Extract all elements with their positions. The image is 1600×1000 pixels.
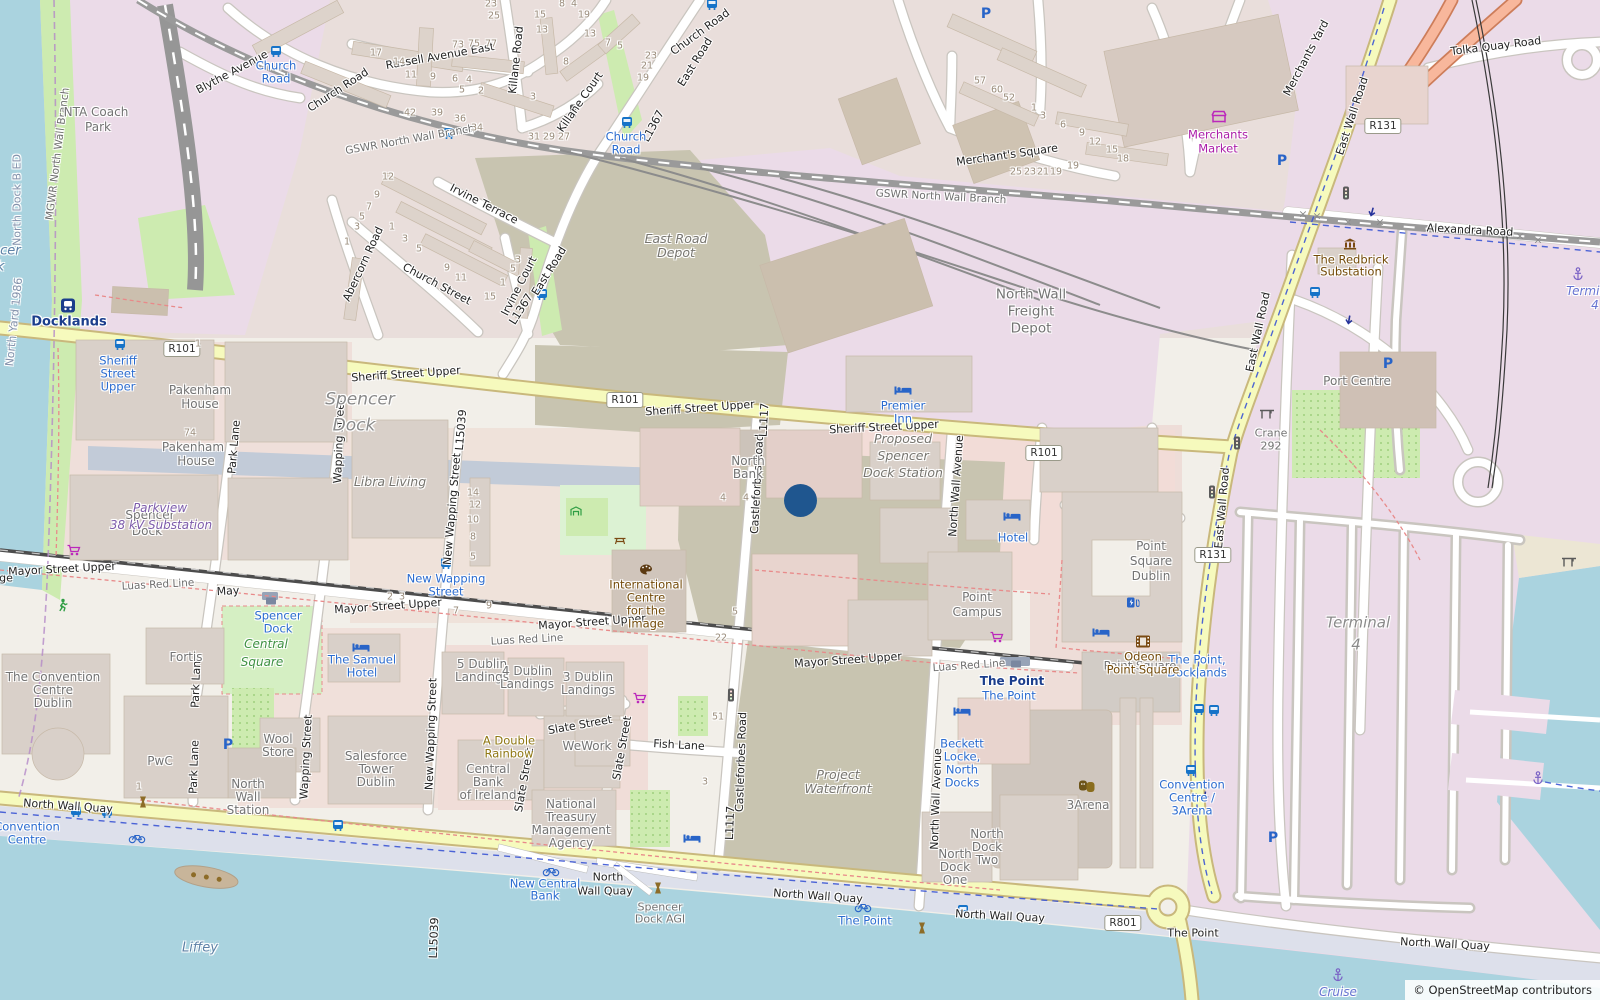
- parkview-label: Parkview: [133, 502, 187, 514]
- traffic-light-icon: [1234, 435, 1240, 454]
- dock-label: Dock: [132, 525, 162, 537]
- pwc-label: PwC: [147, 755, 172, 767]
- bike-icon: [855, 898, 872, 917]
- 6-label: 6: [1060, 120, 1066, 130]
- 6-label: 6: [452, 74, 458, 84]
- fortis-label: Fortis: [169, 651, 202, 663]
- wapping-street-label: Wapping Street: [298, 714, 313, 799]
- picnic-icon: [614, 531, 627, 550]
- depot-label: Depot: [1011, 322, 1052, 336]
- 23-label: 23: [1024, 167, 1036, 177]
- 3-label: 3: [1040, 111, 1046, 121]
- 19-label: 19: [1050, 167, 1062, 177]
- hotel-label: Hotel: [347, 667, 377, 679]
- north-label: North: [938, 848, 972, 860]
- a-double-label: A Double: [483, 735, 535, 747]
- central-label: Central: [244, 638, 288, 650]
- slate-street-label: Slate Street: [611, 715, 633, 781]
- 3-label: 3: [702, 777, 708, 787]
- nav-arrow-icon: [1365, 202, 1380, 223]
- bollard-icon: [918, 920, 927, 939]
- ev-icon: [1127, 594, 1140, 613]
- 8-label: 8: [470, 532, 476, 542]
- waterfront-label: Waterfront: [804, 783, 871, 796]
- 25-label: 25: [488, 11, 500, 21]
- mgwr-north-wall-branch-label: MGWR North Wall Branch: [45, 87, 72, 221]
- train-station-icon: [61, 298, 75, 317]
- abercorn-road-label: Abercorn Road: [341, 225, 385, 303]
- church-street-label: Church Street: [401, 261, 473, 306]
- nav-arrow-icon: [1342, 310, 1355, 330]
- l1117-label: L1117: [724, 806, 736, 840]
- international-label: International: [609, 579, 682, 591]
- 9-label: 9: [430, 72, 436, 82]
- the-point-label: The Point: [980, 675, 1044, 687]
- crane-icon: [1259, 405, 1275, 424]
- new-wapping-street-label: New Wapping Street: [424, 678, 439, 791]
- pakenham-label: Pakenham: [169, 384, 231, 396]
- north-label: North: [946, 764, 978, 776]
- anchor-icon: [1572, 267, 1585, 286]
- map-canvas[interactable]: R101R101R101R131R131R801 PPPPP×××××× She…: [0, 0, 1600, 1000]
- wework-label: WeWork: [563, 740, 612, 752]
- sheriff-street-upper-label: Sheriff Street Upper: [829, 419, 939, 436]
- 1-label: 1: [500, 278, 506, 288]
- r101-shield: R101: [606, 392, 643, 408]
- russell-avenue-east-label: Russell Avenue East: [385, 41, 495, 71]
- runner-icon: [57, 598, 68, 617]
- spencer-label: Spencer: [637, 902, 682, 913]
- east-wall-road-label: East Wall Road: [1334, 76, 1370, 157]
- museum-icon: [1343, 235, 1357, 254]
- bus-icon: [332, 817, 344, 836]
- central-label: Central: [466, 763, 510, 775]
- l1367-label: L1367: [507, 292, 534, 327]
- 5-label: 5: [732, 607, 738, 617]
- road-label: Road: [612, 144, 641, 156]
- level-cross-icon: ×: [1375, 216, 1384, 229]
- 5-dublin-label: 5 Dublin: [457, 658, 507, 670]
- landings-label: Landings: [455, 671, 509, 683]
- 9-label: 9: [1079, 128, 1085, 138]
- market-label: Market: [1198, 143, 1238, 155]
- 38-kv-substation-label: 38 kV Substation: [110, 519, 212, 531]
- killane-court-label: Killane Court: [555, 70, 604, 134]
- park-label: Park: [85, 121, 111, 133]
- point-label: Point: [962, 591, 992, 603]
- bus-icon: [440, 555, 452, 574]
- irvine-terrace-label: Irvine Terrace: [448, 182, 519, 226]
- premier-label: Premier: [881, 400, 925, 412]
- 292-label: 292: [1261, 441, 1282, 452]
- blythe-avenue-label: Blythe Avenue: [194, 48, 269, 95]
- 3-label: 3: [402, 234, 408, 244]
- 14-label: 14: [467, 488, 479, 498]
- l15039-label: L15039: [428, 917, 440, 958]
- irvine-court-label: Irvine Court: [499, 255, 538, 318]
- bollard-icon: [654, 880, 663, 899]
- 12-label: 12: [469, 500, 481, 510]
- 7-label: 7: [366, 202, 372, 212]
- convention-label: Convention: [0, 821, 60, 833]
- bank-label: Bank: [473, 776, 503, 788]
- mayor-street-upper-label: Mayor Street Upper: [538, 613, 646, 631]
- 4-label: 4: [743, 493, 749, 503]
- bike-icon: [543, 862, 560, 881]
- wool-label: Wool: [263, 733, 292, 745]
- dock-label: Dock: [0, 261, 4, 274]
- the-point-label: The Point: [1167, 928, 1218, 939]
- l1367-label: L1367: [640, 108, 666, 143]
- 73-label: 73: [452, 40, 464, 50]
- 42-label: 42: [404, 108, 416, 118]
- libra-living-label: Libra Living: [354, 476, 426, 489]
- north-label: North: [970, 828, 1004, 840]
- centre-label: Centre: [33, 684, 73, 696]
- 13-label: 13: [536, 25, 548, 35]
- bank-label: Bank: [733, 468, 763, 480]
- r131-shield: R131: [1194, 547, 1231, 563]
- bus-icon: [621, 114, 633, 133]
- dock-label: Dock: [940, 861, 970, 873]
- treasury-label: Treasury: [546, 811, 597, 823]
- boat-icon: [171, 860, 241, 897]
- 3-label: 3: [354, 222, 360, 232]
- tram-stop-icon: [266, 590, 276, 609]
- 14-label: 14: [393, 57, 405, 67]
- 12-label: 12: [382, 172, 394, 182]
- 74-label: 74: [184, 428, 196, 438]
- the-point-label: The Point,: [1168, 654, 1225, 666]
- spencer-label: Spencer: [0, 245, 21, 258]
- 12-label: 12: [1089, 137, 1101, 147]
- landings-label: Landings: [561, 684, 615, 696]
- 23-label: 23: [645, 51, 657, 61]
- killane-road-label: Killane Road: [507, 26, 525, 95]
- 3-label: 3: [515, 255, 521, 265]
- bus-icon: [706, 0, 718, 15]
- dock-agi-label: Dock AGI: [635, 914, 685, 925]
- proposed-label: Proposed: [874, 433, 932, 446]
- centre-label: Centre: [627, 592, 665, 604]
- 4-label: 4: [1591, 299, 1599, 311]
- 52-label: 52: [1003, 93, 1015, 103]
- sheriff-street-upper-label: Sheriff Street Upper: [351, 365, 461, 384]
- alexandra-road-label: Alexandra Road: [1426, 222, 1513, 238]
- centre-label: Centre: [8, 834, 46, 846]
- 29-label: 29: [543, 132, 555, 142]
- north-label: North: [731, 455, 765, 467]
- church-road-label: Church Road: [306, 66, 371, 113]
- parking-icon: P: [981, 6, 991, 22]
- point-square-label: Point Square: [1107, 664, 1180, 676]
- port-centre-label: Port Centre: [1323, 375, 1391, 387]
- 9-label: 9: [444, 263, 450, 273]
- 11-label: 11: [405, 70, 417, 80]
- 21-label: 21: [641, 61, 653, 71]
- market-icon: [1211, 109, 1227, 128]
- slate-street-label: Slate Street: [513, 747, 535, 813]
- east-road-label: East Road: [645, 233, 708, 246]
- 36-label: 36: [454, 114, 466, 124]
- map-overlay: R101R101R101R131R131R801 PPPPP×××××× She…: [0, 0, 1600, 1000]
- 18-label: 18: [1117, 154, 1129, 164]
- fish-lane-label: Fish Lane: [653, 738, 705, 752]
- east-road-label: East Road: [676, 36, 714, 88]
- 17-label: 17: [370, 48, 382, 58]
- bus-icon: [1309, 284, 1321, 303]
- terminal-label: Terminal: [1566, 285, 1600, 297]
- station-label: Station: [227, 804, 270, 816]
- level-cross-icon: ×: [1515, 230, 1524, 243]
- cart-icon: [633, 690, 648, 709]
- 1-label: 1: [389, 222, 395, 232]
- church-label: Church: [256, 60, 297, 72]
- bus-icon: [1208, 702, 1220, 721]
- north-label: North: [231, 778, 265, 790]
- l1117-label: L1117: [758, 403, 771, 438]
- tower-label: Tower: [359, 763, 394, 775]
- 5-label: 5: [470, 552, 476, 562]
- convention-label: Convention: [1159, 779, 1225, 791]
- 19-label: 19: [637, 73, 649, 83]
- tolka-quay-road-label: Tolka Quay Road: [1450, 35, 1542, 57]
- bed-icon: [954, 702, 971, 721]
- park-lane-label: Park Lane: [188, 740, 201, 794]
- gswr-north-wall-branch-label: GSWR North Wall Branch: [345, 123, 476, 156]
- spencer-label: Spencer: [125, 509, 174, 521]
- bus-icon: [114, 336, 126, 355]
- bollard-icon: [139, 794, 148, 813]
- salesforce-label: Salesforce: [345, 750, 407, 762]
- bed-icon: [353, 638, 370, 657]
- substation-label: Substation: [1320, 266, 1381, 278]
- 4-dublin-label: 4 Dublin: [502, 665, 552, 677]
- 34-label: 34: [471, 123, 483, 133]
- merchants-yard-label: Merchants Yard: [1281, 18, 1330, 97]
- house-label: House: [177, 455, 215, 467]
- dock-label: Dock: [972, 841, 1002, 853]
- nta-coach-label: NTA Coach: [64, 106, 129, 118]
- 10-label: 10: [467, 515, 479, 525]
- road-label: Road: [262, 73, 291, 85]
- dock-label: Dock: [264, 623, 293, 635]
- dublin-label: Dublin: [1132, 570, 1171, 582]
- north-wall-quay-label: North Wall Quay: [23, 797, 113, 814]
- the-samuel-label: The Samuel: [328, 654, 396, 666]
- 9-label: 9: [486, 601, 492, 611]
- castleforbes-road-label: Castleforbes Road: [734, 712, 748, 812]
- the-point-label: The Point: [982, 690, 1036, 702]
- 21-label: 21: [1037, 167, 1049, 177]
- spencer-label: Spencer: [254, 610, 301, 622]
- 31-label: 31: [528, 132, 540, 142]
- merchant-s-square-label: Merchant's Square: [955, 142, 1058, 167]
- park-lane-label: Park Lane: [226, 420, 242, 475]
- sheriff-street-upper-label: Sheriff Street Upper: [645, 399, 755, 418]
- anchor-icon: [1532, 771, 1545, 790]
- east-wall-road-label: East Wall Road: [1213, 467, 1231, 549]
- bank-label: Bank: [531, 890, 560, 902]
- liffey-label: Liffey: [182, 942, 218, 955]
- playground-icon: [570, 502, 583, 521]
- street-label: Street: [101, 368, 136, 380]
- new-wapping-street-label: New Wapping Street: [442, 453, 463, 566]
- 77-label: 77: [485, 39, 497, 49]
- bike-icon: [129, 829, 146, 848]
- rainbow-label: Rainbow: [484, 748, 533, 760]
- 5-label: 5: [359, 212, 365, 222]
- campus-label: Campus: [953, 606, 1002, 618]
- gswr-north-wall-branch-label: GSWR North Wall Branch: [875, 188, 1006, 205]
- merchants-label: Merchants: [1188, 129, 1248, 141]
- 15-label: 15: [534, 10, 546, 20]
- 4-label: 4: [571, 0, 577, 9]
- level-cross-icon: ×: [1298, 208, 1307, 221]
- attribution[interactable]: © OpenStreetMap contributors: [1405, 980, 1600, 1000]
- parking-icon: P: [1268, 830, 1278, 846]
- bus-icon: [101, 804, 113, 823]
- 5-label: 5: [510, 264, 516, 274]
- depot-label: Depot: [657, 247, 695, 260]
- crane-label: Crane: [1255, 428, 1288, 439]
- store-label: Store: [262, 746, 294, 758]
- north-dock-b-ed-label: North Dock B ED: [12, 154, 23, 246]
- 11-label: 11: [455, 273, 467, 283]
- bus-icon: [536, 286, 548, 305]
- docklands-label: Docklands: [31, 316, 107, 329]
- may-label: May: [216, 585, 239, 597]
- bed-icon: [1093, 623, 1110, 642]
- north-wall-quay-label: North Wall Quay: [955, 908, 1045, 924]
- r101-shield: R101: [163, 341, 200, 357]
- house-label: House: [181, 398, 219, 410]
- 4-label: 4: [720, 493, 726, 503]
- terminal-label: Terminal: [1326, 616, 1390, 631]
- level-cross-icon: ×: [1533, 234, 1542, 247]
- location-marker[interactable]: [784, 484, 817, 517]
- bus-icon: [70, 803, 82, 822]
- of-ireland-label: of Ireland: [460, 789, 517, 801]
- square-label: Square: [1130, 555, 1172, 567]
- anchor-icon: [1332, 968, 1345, 987]
- parking-icon: P: [223, 737, 233, 753]
- two-label: Two: [976, 854, 999, 866]
- upper-label: Upper: [101, 381, 136, 393]
- slate-street-label: Slate Street: [547, 714, 613, 736]
- 3arena-label: 3Arena: [1171, 805, 1212, 817]
- bed-icon: [895, 381, 912, 400]
- landings-label: Landings: [500, 678, 554, 690]
- dock-label: Dock: [333, 418, 376, 435]
- park-lane-label: Park Lane: [190, 654, 203, 708]
- luas-red-line-label: Luas Red Line: [932, 658, 1005, 674]
- 51-label: 51: [712, 712, 724, 722]
- one-label: One: [943, 874, 967, 886]
- 1-label: 1: [136, 782, 142, 792]
- 19-label: 19: [578, 10, 590, 20]
- pakenham-label: Pakenham: [162, 441, 224, 453]
- north-wall-avenue-label: North Wall Avenue: [929, 748, 944, 850]
- mayor-street-upper-label: Mayor Street Upper: [8, 561, 116, 578]
- crane-icon: [1561, 553, 1577, 572]
- spencer-label: Spencer: [877, 450, 928, 463]
- traffic-light-icon: [1343, 185, 1349, 204]
- 8-label: 8: [559, 0, 565, 9]
- east-road-label: East Road: [530, 245, 568, 297]
- locke-label: Locke,: [944, 751, 981, 763]
- north-wall-label: North Wall: [996, 288, 1066, 302]
- wall-quay-label: Wall Quay: [577, 886, 632, 897]
- tram-stop-icon: [1011, 653, 1021, 672]
- 8-label: 8: [563, 57, 569, 67]
- 57-label: 57: [974, 76, 986, 86]
- north-wall-avenue-label: North Wall Avenue: [947, 435, 965, 537]
- the-convention-label: The Convention: [6, 671, 101, 683]
- castleforbes-road-label: Castleforbes Road: [749, 434, 765, 534]
- bus-icon: [443, 125, 455, 144]
- 2-label: 2: [478, 86, 484, 96]
- 23-label: 23: [485, 0, 497, 9]
- bus-icon: [1193, 701, 1205, 720]
- 39-label: 39: [431, 108, 443, 118]
- masks-icon: [1079, 778, 1095, 797]
- square-label: Square: [241, 656, 284, 668]
- parking-icon: P: [1383, 356, 1393, 372]
- r801-shield: R801: [1104, 915, 1141, 931]
- 15-label: 15: [484, 292, 496, 302]
- sheriff-label: Sheriff: [99, 355, 137, 367]
- film-icon: [1136, 633, 1150, 652]
- 5-label: 5: [617, 41, 623, 51]
- north-yard-1986-label: North Yard 1986: [4, 277, 24, 367]
- wapping-street-label: Wapping Street: [332, 398, 346, 483]
- 3-label: 3: [530, 92, 536, 102]
- national-label: National: [546, 798, 596, 810]
- church-road-label: Church Road: [668, 7, 731, 57]
- cruise-label: Cruise: [1319, 986, 1357, 998]
- mayor-street-upper-label: Mayor Street Upper: [334, 597, 442, 615]
- for-the-label: for the: [627, 605, 665, 617]
- 1-label: 1: [344, 237, 350, 247]
- l15039-label: L15039: [454, 409, 469, 451]
- wall-label: Wall: [235, 791, 260, 803]
- 19-label: 19: [1067, 161, 1079, 171]
- bus-icon: [957, 902, 969, 921]
- 75-label: 75: [468, 39, 480, 49]
- point-label: Point: [1136, 540, 1166, 552]
- image-label: Image: [628, 618, 664, 630]
- 27-label: 27: [558, 132, 570, 142]
- 2-label: 2: [387, 592, 393, 602]
- 9-label: 9: [374, 190, 380, 200]
- 5-label: 5: [459, 85, 465, 95]
- cart-icon: [990, 629, 1005, 648]
- 7-label: 7: [605, 38, 611, 48]
- mayor-street-upper-label: Mayor Street Upper: [794, 651, 902, 669]
- bus-icon: [1185, 762, 1197, 781]
- the-point-label: The Point: [838, 915, 892, 927]
- r101-shield: R101: [1025, 445, 1062, 461]
- luas-red-line-label: Luas Red Line: [121, 578, 194, 592]
- docklands-label: Docklands: [1167, 667, 1227, 679]
- 25-label: 25: [1010, 167, 1022, 177]
- bed-icon: [684, 829, 701, 848]
- bed-icon: [1004, 507, 1021, 526]
- dublin-label: Dublin: [34, 697, 73, 709]
- centre-label: Centre /: [1169, 792, 1215, 804]
- street-label: Street: [429, 586, 464, 598]
